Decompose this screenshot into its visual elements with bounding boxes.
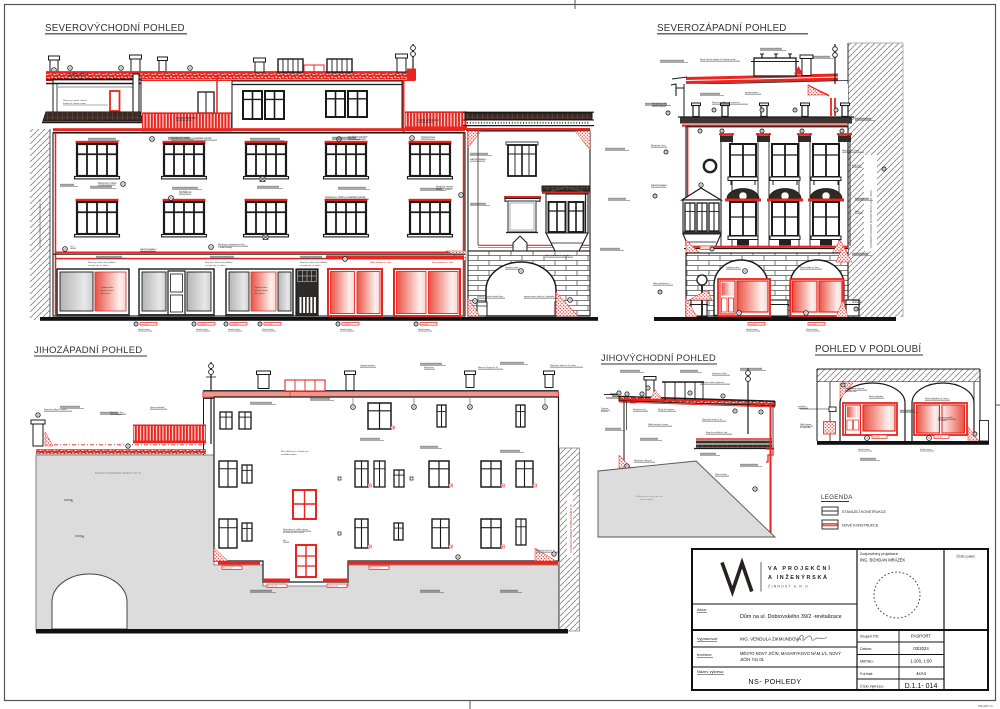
svg-text:výmalby stěn: výmalby stěn <box>845 390 857 393</box>
svg-text:Detail vstup: Detail vstup <box>340 328 352 331</box>
svg-text:NOVÉ KONSTRUKCE: NOVÉ KONSTRUKCE <box>842 523 879 528</box>
svg-text:s novým opl. vč. nátěru: s novým opl. vč. nátěru <box>88 264 109 267</box>
svg-text:Detail vstup: Detail vstup <box>418 328 430 331</box>
svg-text:přesun vstupů: přesun vstupů <box>101 289 114 292</box>
svg-text:±0,000: ±0,000 <box>810 324 817 326</box>
svg-text:dle návrhu: dle návrhu <box>101 293 110 295</box>
svg-text:krytina vč. klemp. prvků: krytina vč. klemp. prvků <box>63 102 87 105</box>
svg-text:594x420 mm: 594x420 mm <box>978 704 993 708</box>
svg-text:Detail vstup: Detail vstup <box>138 328 150 331</box>
svg-text:Detail vstup: Detail vstup <box>196 328 208 331</box>
svg-text:MĚSTO NOVÝ JIČÍN, MASARYKOVO: MĚSTO NOVÝ JIČÍN, MASARYKOVO NÁM.1/1, NO… <box>740 651 841 656</box>
svg-text:s novým opl. vč. nátěru: s novým opl. vč. nátěru <box>205 264 226 267</box>
svg-text:JIHOVÝCHODNÍ POHLED: JIHOVÝCHODNÍ POHLED <box>601 353 716 363</box>
svg-text:Nový kryt. římsy: Nový kryt. římsy <box>98 181 117 185</box>
svg-text:±0,000: ±0,000 <box>935 437 942 439</box>
svg-text:ING. BOHDAN MRÁZEK: ING. BOHDAN MRÁZEK <box>860 558 906 563</box>
svg-text:PASPORT: PASPORT <box>911 634 932 639</box>
svg-text:NÁTĚR FASÁDY: NÁTĚR FASÁDY <box>470 158 487 161</box>
svg-text:komínů: komínů <box>601 410 609 413</box>
svg-text:s novým opl. vč. nátěru: s novým opl. vč. nátěru <box>300 264 321 267</box>
svg-text:Výměna oken,: Výměna oken, <box>255 287 268 289</box>
svg-text:LEGENDA: LEGENDA <box>821 494 853 501</box>
svg-text:BUDOVA SOUSEDNÍHO OBJEKTU CP.: BUDOVA SOUSEDNÍHO OBJEKTU CP. 40 <box>95 472 142 475</box>
svg-text:osvětlení: osvětlení <box>798 405 806 408</box>
svg-text:Nátěr: Nátěr <box>855 210 860 213</box>
svg-text:Nový kryt stříšky vč. opl.: Nový kryt stříšky vč. opl. <box>706 431 728 434</box>
svg-text:ING. VENDULA ZIKMUNDOVÁ: ING. VENDULA ZIKMUNDOVÁ <box>740 637 801 642</box>
svg-text:Nový krov: Nový krov <box>424 366 435 369</box>
svg-text:Nátěr fasády: Nátěr fasády <box>715 473 726 476</box>
svg-text:POHLED V PODLOUBÍ: POHLED V PODLOUBÍ <box>815 344 921 355</box>
svg-text:Datum:: Datum: <box>860 647 872 651</box>
svg-text:Zodpovědný projektant:: Zodpovědný projektant: <box>860 552 899 556</box>
svg-text:Nový krov, latění vč. kl. prvk: Nový krov, latění vč. kl. prvků <box>550 364 576 367</box>
svg-text:Nátěr kleneb: Nátěr kleneb <box>800 423 812 426</box>
svg-text:NÁTĚR FASÁDY: NÁTĚR FASÁDY <box>651 184 668 187</box>
svg-text:Nový kryt. střešní kce podloub: Nový kryt. střešní kce podloubí <box>300 261 328 264</box>
svg-text:Oprava ev. trhlin: Oprava ev. trhlin <box>712 372 727 375</box>
svg-text:Nový sokl: Nový sokl <box>852 300 861 302</box>
svg-text:Nový kryt. hl. římsy: Nový kryt. hl. římsy <box>842 149 859 152</box>
svg-text:4xA4: 4xA4 <box>916 671 926 676</box>
svg-text:+ nátěr fasády: + nátěr fasády <box>218 246 233 249</box>
svg-text:Nový krov, latění, stř. krytin: Nový krov, latění, stř. krytina vč. <box>712 101 741 104</box>
svg-text:Nová výkladce vč. rámu: Nová výkladce vč. rámu <box>370 262 391 264</box>
svg-text:Oprava zábradlí: Oprava zábradlí <box>150 407 165 409</box>
svg-text:±0,000: ±0,000 <box>344 324 351 326</box>
svg-text:Nový sokl: Nový sokl <box>328 586 338 588</box>
svg-text:Detail vstup: Detail vstup <box>920 448 932 451</box>
svg-text:Nová okna vč. mříží, oprava: Nová okna vč. mříží, oprava <box>283 529 309 531</box>
svg-text:Detail vstup: Detail vstup <box>228 328 240 331</box>
svg-text:Nový kryt. říms vč. kl.: Nový kryt. říms vč. kl. <box>536 549 555 552</box>
svg-text:oprava komínů: oprava komínů <box>745 91 758 94</box>
svg-text:JIHOZÁPADNÍ POHLED: JIHOZÁPADNÍ POHLED <box>34 345 142 356</box>
svg-text:Nový kryt. parapetních říms: Nový kryt. parapetních říms <box>218 243 246 246</box>
svg-text:Nový sokl: Nový sokl <box>268 586 278 588</box>
svg-text:Výměna oken: Výměna oken <box>726 267 740 269</box>
svg-text:ČINNOST S.R.O.: ČINNOST S.R.O. <box>768 584 811 589</box>
svg-text:Nová stř. krytina: Nová stř. krytina <box>658 408 675 411</box>
svg-text:Nová fasáda vč. říms: Nová fasáda vč. říms <box>800 267 819 269</box>
svg-text:přesun vstupů: přesun vstupů <box>255 289 268 292</box>
svg-text:Nový kryt. atiky vč.: Nový kryt. atiky vč. <box>634 459 653 462</box>
svg-text:±0,000: ±0,000 <box>266 324 273 326</box>
svg-text:Mezi příčkami, vč. těsnění spá: Mezi příčkami, vč. těsnění spár <box>281 450 309 453</box>
svg-text:±0,000: ±0,000 <box>750 324 757 326</box>
svg-text:±0,000: ±0,000 <box>232 324 239 326</box>
svg-text:Nátěr fasády vč. oprav: Nátěr fasády vč. oprav <box>648 423 668 426</box>
svg-text:SEVEROVÝCHODNÍ POHLED: SEVEROVÝCHODNÍ POHLED <box>45 23 185 34</box>
svg-text:JIČÍN 741 01: JIČÍN 741 01 <box>740 657 765 662</box>
svg-text:Výměna oken,: Výměna oken, <box>101 287 114 289</box>
svg-text:Číslo výkresu:: Číslo výkresu: <box>860 684 884 689</box>
svg-text:±0,000: ±0,000 <box>422 324 429 326</box>
svg-text:Investor:: Investor: <box>697 652 712 657</box>
svg-text:Stupeň PD:: Stupeň PD: <box>860 635 879 639</box>
svg-text:Nový krov, latění, střešní: Nový krov, latění, střešní <box>63 99 87 102</box>
svg-text:Oprava říms: Oprava říms <box>421 135 436 139</box>
svg-text:Nátěr podhledu vč.: Nátěr podhledu vč. <box>653 282 670 285</box>
svg-text:ev. trhlin po stat. opravě: ev. trhlin po stat. opravě <box>283 531 305 534</box>
svg-text:±0,000: ±0,000 <box>200 324 207 326</box>
svg-text:Opr. pův. portálu: Opr. pův. portálu <box>938 416 953 419</box>
svg-text:Detail vstup: Detail vstup <box>806 328 818 331</box>
svg-text:Pohled na stř. rovinu, kter. v: Pohled na stř. rovinu, kter. viz. <box>636 495 663 498</box>
svg-text:Nový kryt: Nový kryt <box>852 164 861 167</box>
svg-text:Měřítko:: Měřítko: <box>860 660 874 664</box>
svg-text:Nátěr podhledu vč. výmalby: Nátěr podhledu vč. výmalby <box>545 254 570 257</box>
svg-text:Akce:: Akce: <box>697 607 707 612</box>
svg-text:Nový sokl: Nový sokl <box>223 568 233 570</box>
svg-text:Nový kryt. střešní kce podloub: Nový kryt. střešní kce podloubí <box>205 261 233 264</box>
svg-text:Dům na ul. Dobrovského 39/2 -r: Dům na ul. Dobrovského 39/2 -revitalizac… <box>740 613 842 620</box>
svg-text:SOUSEDNÍ OBJEKT MASARYKOVO NÁM: SOUSEDNÍ OBJEKT MASARYKOVO NÁM. 20/15 <box>869 190 873 248</box>
svg-text:NÁTĚR FASÁDY: NÁTĚR FASÁDY <box>140 248 157 251</box>
svg-text:1:100, 1:50: 1:100, 1:50 <box>910 659 932 664</box>
svg-text:A INŽENÝRSKÁ: A INŽENÝRSKÁ <box>768 573 829 581</box>
svg-text:Nový kryt. římsy vč. kl.: Nový kryt. římsy vč. kl. <box>702 418 722 421</box>
svg-text:03/2024: 03/2024 <box>913 646 929 651</box>
svg-text:Nová střešní krytina vč. klemp: Nová střešní krytina vč. klemp. prvků <box>700 58 737 61</box>
svg-text:SEVEROZÁPADNÍ POHLED: SEVEROZÁPADNÍ POHLED <box>657 23 787 34</box>
svg-text:novodobá izolace: novodobá izolace <box>281 454 297 456</box>
svg-text:±0,000: ±0,000 <box>873 437 880 439</box>
svg-text:Detail vstup: Detail vstup <box>262 328 274 331</box>
svg-text:Nová fasáda včetně říms: Nová fasáda včetně říms <box>479 295 504 298</box>
svg-text:VA PROJEKČNÍ: VA PROJEKČNÍ <box>768 564 832 572</box>
svg-text:vč. výmalby: vč. výmalby <box>800 427 810 429</box>
svg-text:Nová výkladce: Nová výkladce <box>869 396 884 398</box>
svg-text:Detail vstup: Detail vstup <box>746 328 758 331</box>
svg-text:Nátěr kleneb, obnova: Nátěr kleneb, obnova <box>845 387 865 390</box>
svg-text:Oprava komínů: Oprava komínů <box>360 364 376 367</box>
svg-text:Nový sokl: Nový sokl <box>370 568 380 570</box>
svg-text:Oprava ev. trhlin po statické: Oprava ev. trhlin po statické opravě <box>325 195 366 199</box>
svg-text:vč. nátěru: vč. nátěru <box>938 419 947 422</box>
svg-text:D.1.1- 014: D.1.1- 014 <box>905 683 938 690</box>
svg-text:Nová stř. krytina vč. kl.: Nová stř. krytina vč. kl. <box>478 366 499 369</box>
svg-text:Formát:: Formát: <box>860 672 873 676</box>
svg-text:Oprava: Oprava <box>601 407 609 410</box>
svg-text:±0,000: ±0,000 <box>142 324 149 326</box>
svg-text:Nová výkladce vč. rámu: Nová výkladce vč. rámu <box>432 262 453 264</box>
svg-text:Vypracoval:: Vypracoval: <box>697 636 718 641</box>
svg-text:NS- POHLEDY: NS- POHLEDY <box>748 677 801 686</box>
svg-text:dle návrhu: dle návrhu <box>255 293 264 295</box>
svg-text:samost. výkres: samost. výkres <box>640 498 653 501</box>
svg-text:Číslo paré:: Číslo paré: <box>956 554 975 559</box>
svg-text:Nový kryt. říms: Nový kryt. říms <box>651 144 666 147</box>
svg-text:Nová výkladce vč. rámů: Nová výkladce vč. rámů <box>925 397 949 400</box>
svg-text:Detail vstup: Detail vstup <box>858 448 870 451</box>
svg-text:Název výkresu:: Název výkresu: <box>697 669 724 674</box>
svg-text:Výměna oken: Výměna oken <box>505 267 519 269</box>
svg-text:Nový krov vč.: Nový krov vč. <box>633 408 647 411</box>
svg-text:Nový kryt. okenní: Nový kryt. okenní <box>436 185 453 188</box>
svg-text:Nový kryt. střešní kce podloub: Nový kryt. střešní kce podloubí <box>88 261 116 264</box>
svg-text:Nový krov, latění, krytina vč.: Nový krov, latění, krytina vč. <box>700 381 725 384</box>
svg-text:STÁVAJÍCÍ KONSTRUKCE: STÁVAJÍCÍ KONSTRUKCE <box>842 510 886 514</box>
svg-text:oprava kam. soklu vč. injektáž: oprava kam. soklu vč. injektáže <box>524 295 555 298</box>
